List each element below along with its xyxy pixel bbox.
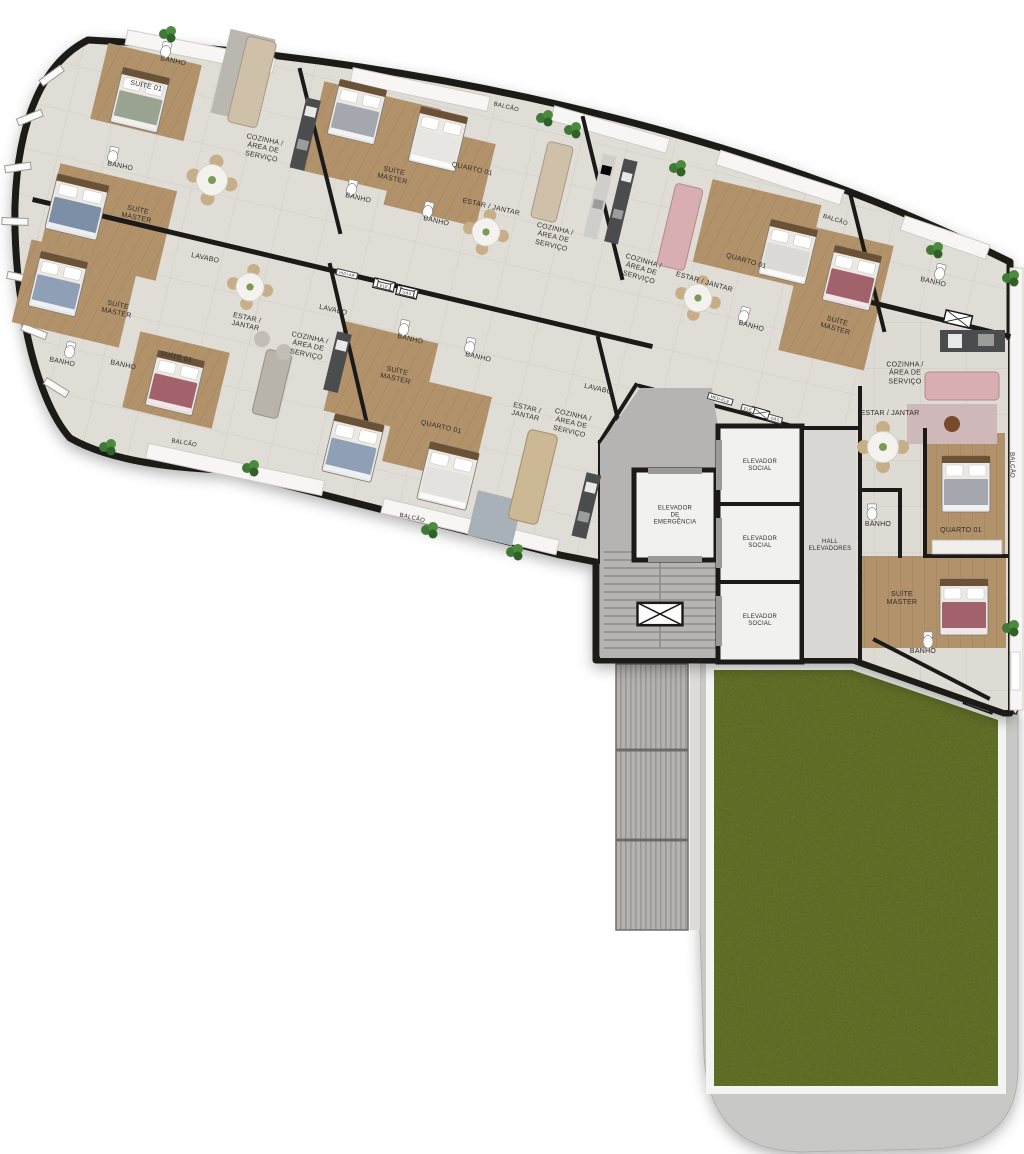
ramp [616, 664, 700, 930]
floor-plan-drawing [0, 0, 1024, 1154]
hall-elevadores-floor [804, 430, 856, 658]
wardrobe-icon [932, 540, 1002, 554]
floor-plan: BANHOSUÍTE 01BANHOSUÍTE MASTERCOZINHA / … [0, 0, 1024, 1154]
toilet-icon [923, 632, 933, 648]
bench-icon [1011, 652, 1020, 690]
sofa-icon [925, 372, 999, 400]
bed-icon [940, 579, 988, 635]
elevator-social-shaft [716, 426, 802, 662]
terrace [700, 658, 1020, 1152]
lawn [714, 670, 998, 1086]
elevator-emergency [634, 468, 716, 562]
coffee-table-icon [944, 416, 960, 432]
bed-icon [942, 456, 990, 512]
toilet-icon [867, 504, 877, 520]
